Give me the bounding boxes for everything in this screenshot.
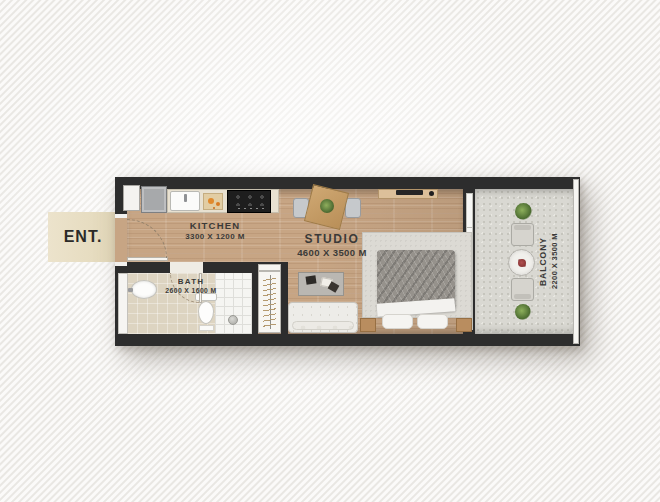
balcony-label: BALCONY 2200 X 3500 M	[533, 189, 563, 334]
tv	[396, 190, 423, 195]
balcony-plant-top	[515, 203, 532, 220]
entrance-label: ENT.	[64, 228, 103, 246]
sofa	[288, 302, 358, 333]
stove-knobs	[236, 207, 264, 210]
bath-name: BATH	[165, 277, 216, 286]
studio-label: STUDIO 4600 X 3500 M	[297, 232, 367, 258]
wardrobe	[258, 271, 281, 333]
nightstand-right	[456, 318, 472, 332]
pillow	[382, 314, 413, 329]
nightstand-left	[360, 318, 376, 332]
balcony-chair-top	[511, 223, 534, 246]
floor-plan-page: { "meta": { "type": "apartment-floor-pla…	[0, 0, 660, 502]
kitchen-label: KITCHEN 3300 X 1200 M	[185, 220, 244, 241]
floor-plan: KITCHEN 3300 X 1200 M STUDIO 4600 X 3500…	[115, 177, 580, 346]
stove	[227, 190, 271, 213]
kitchen-name: KITCHEN	[185, 220, 244, 231]
balcony-dimensions: 2200 X 3500 M	[550, 233, 559, 289]
pillow	[417, 314, 448, 329]
bath-mat	[199, 325, 214, 331]
wardrobe-shelf	[258, 264, 281, 271]
balcony-plant-bottom	[515, 304, 531, 320]
balcony-railing	[573, 179, 579, 344]
tall-cabinet	[123, 185, 140, 211]
studio-dimensions: 4600 X 3500 M	[297, 247, 367, 258]
studio-name: STUDIO	[297, 232, 367, 246]
bath-dimensions: 2600 X 1600 M	[165, 287, 216, 294]
bath-label: BATH 2600 X 1600 M	[165, 277, 216, 294]
kitchen-sink	[170, 191, 200, 211]
entrance-frame-bottom	[115, 262, 127, 266]
stove-burners	[232, 193, 268, 206]
wardrobe-wall	[281, 262, 288, 334]
table-plant	[320, 199, 334, 213]
service-duct	[118, 273, 128, 334]
console-speaker	[429, 191, 434, 196]
balcony-flower-pot	[518, 259, 526, 267]
dining-chair-right	[345, 198, 361, 218]
entrance-frame-top	[115, 214, 127, 218]
balcony-name: BALCONY	[538, 237, 548, 286]
entrance-opening	[115, 218, 127, 262]
bath-door-opening	[170, 262, 203, 273]
floor-drain	[228, 315, 238, 325]
washbasin	[131, 280, 157, 299]
coffee-table-book	[305, 275, 316, 284]
entrance-banner: ENT.	[48, 212, 118, 262]
kitchen-dimensions: 3300 X 1200 M	[185, 232, 244, 241]
cutting-board	[203, 193, 223, 210]
fridge	[141, 186, 167, 213]
balcony-chair-bottom	[511, 278, 534, 301]
